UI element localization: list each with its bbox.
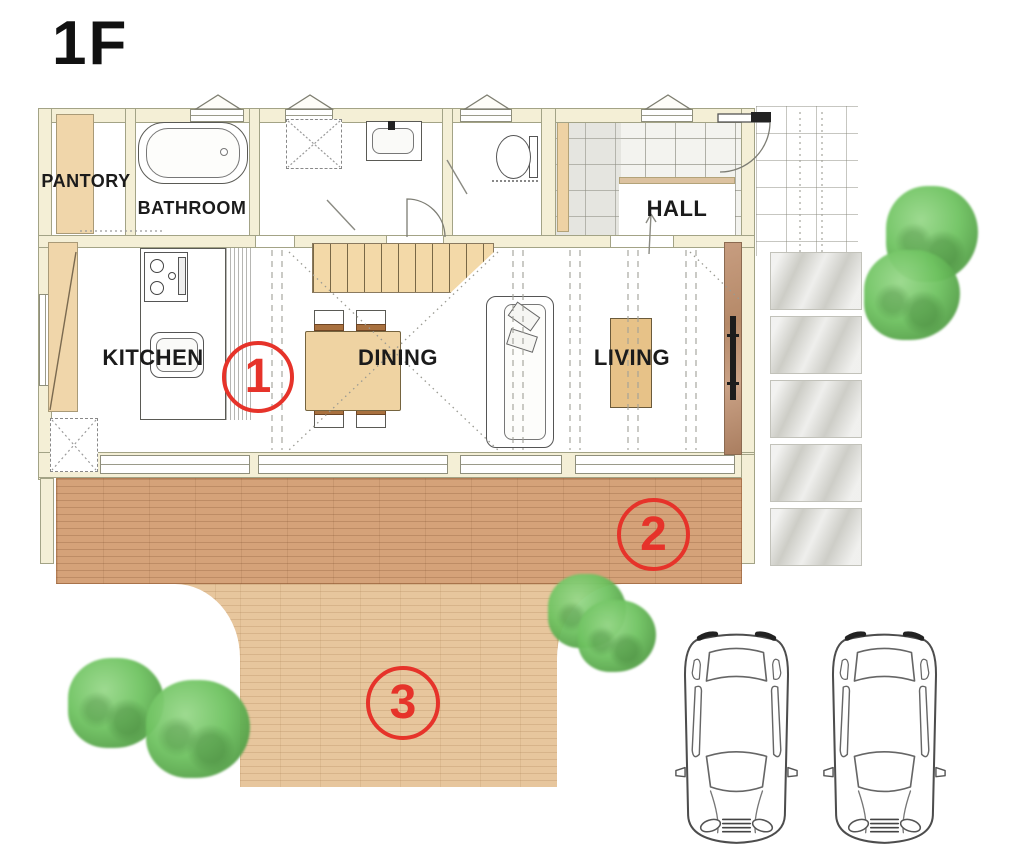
door-opening-hall — [610, 236, 674, 247]
side-storage — [48, 242, 78, 412]
bay-triangle-icons — [196, 95, 690, 109]
tree-icon — [864, 250, 960, 340]
door-opening-washroom — [255, 236, 295, 247]
window-bottom-2 — [258, 455, 448, 474]
tv-icon — [730, 316, 736, 400]
room-label-bathroom: BATHROOM — [122, 199, 262, 219]
tv-bracket — [727, 382, 739, 385]
window-top-4 — [641, 109, 693, 122]
room-label-dining: DINING — [342, 346, 454, 370]
washbasin-bowl — [372, 128, 414, 154]
tree-icon — [146, 680, 250, 778]
wall-bathroom-washroom — [249, 108, 260, 247]
room-label-living: LIVING — [562, 346, 702, 370]
window-bottom-3 — [460, 455, 562, 474]
chair-back — [314, 324, 344, 331]
wall-washroom-toilet — [442, 108, 453, 247]
marker-1: 1 — [222, 341, 294, 413]
window-bottom-4 — [575, 455, 735, 474]
car-icon — [822, 626, 947, 848]
shoe-cabinet — [557, 120, 569, 232]
page-title: 1F — [52, 8, 128, 79]
car-icon — [674, 626, 799, 848]
wall-toilet-hall — [541, 108, 556, 247]
entrance-porch-tiles — [756, 106, 858, 256]
stone-tile — [770, 508, 862, 566]
window-top-3 — [460, 109, 512, 122]
window-bottom-1 — [100, 455, 250, 474]
floor-hatch-square — [50, 418, 98, 472]
room-label-hall: HALL — [615, 197, 739, 221]
floor-plan-page: 1F — [0, 0, 1024, 859]
marker-3: 3 — [366, 666, 440, 740]
stove-burner-2 — [150, 281, 164, 295]
stove-grill — [178, 257, 186, 295]
stone-tile — [770, 444, 862, 502]
toilet-icon — [496, 135, 531, 179]
window-top-1 — [190, 109, 244, 122]
stairs — [312, 243, 494, 293]
room-label-kitchen: KITCHEN — [94, 346, 212, 370]
washer-pan — [286, 119, 342, 169]
wall-right — [741, 108, 755, 454]
marker-2: 2 — [617, 498, 690, 571]
wall-side-strip-right — [741, 454, 755, 564]
toilet-counter — [492, 180, 538, 184]
stove-burner-3 — [168, 272, 176, 280]
washbasin-faucet — [388, 121, 395, 130]
tv-bracket — [727, 334, 739, 337]
stone-tile — [770, 380, 862, 438]
wall-side-strip-left — [40, 478, 54, 564]
stone-tile — [770, 252, 862, 310]
chair-back — [356, 324, 386, 331]
genkan-step — [619, 177, 735, 184]
stove-burner-1 — [150, 259, 164, 273]
bathtub-drain — [220, 148, 228, 156]
dining-table — [305, 331, 401, 411]
room-label-pantry: PANTORY — [28, 172, 144, 192]
stone-tile — [770, 316, 862, 374]
